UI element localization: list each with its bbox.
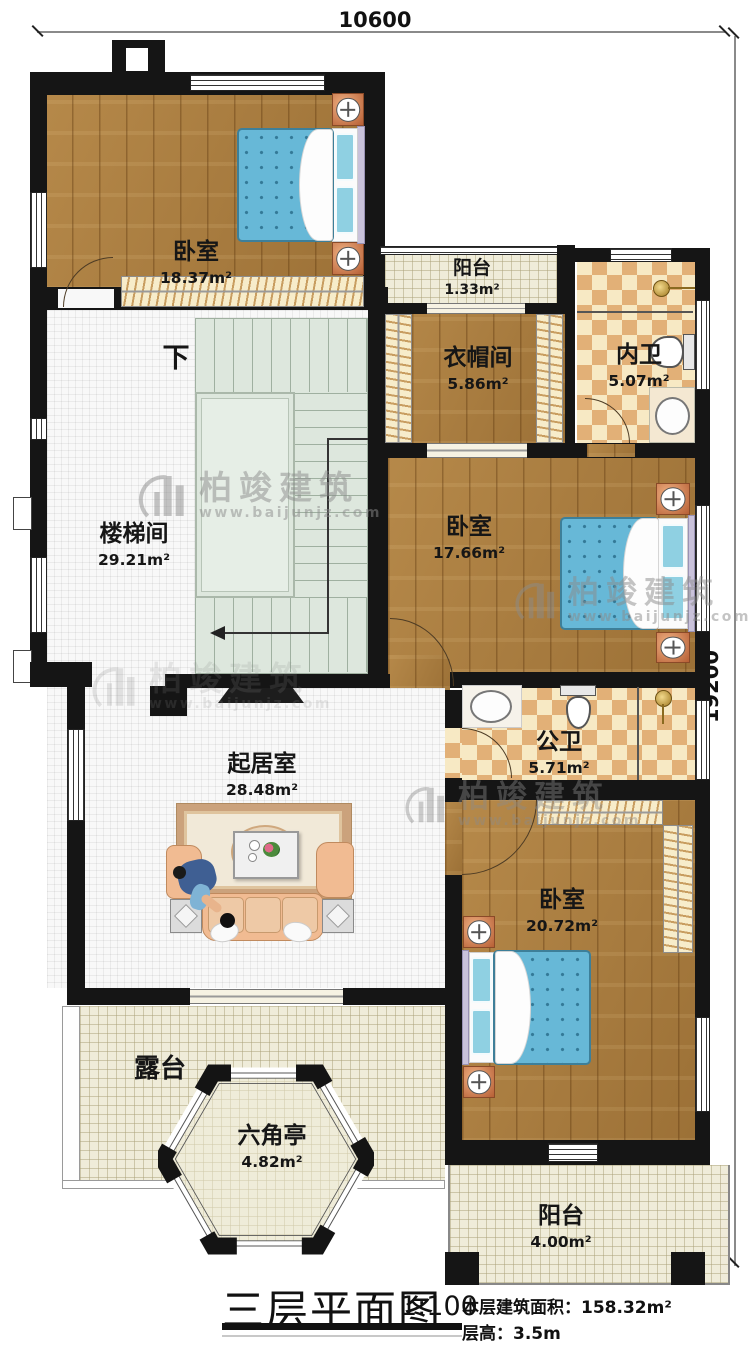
room-label-pavilion: 六角亭4.82m² <box>238 1122 307 1172</box>
sink <box>470 690 512 723</box>
watermark-url: www.baijunjz.com <box>458 813 641 829</box>
room-label-living-room: 起居室28.48m² <box>226 750 298 800</box>
floor-plan: 10600 19200 <box>0 0 750 1351</box>
terrace-parapet <box>62 1006 80 1184</box>
chimney-flue <box>126 48 148 71</box>
room-label-balcony-bottom: 阳台4.00m² <box>530 1202 591 1252</box>
wall <box>30 662 92 687</box>
door-opening <box>587 444 635 457</box>
watermark-brand: 柏竣建筑 <box>149 662 332 697</box>
divider-line <box>577 311 693 313</box>
room-label-cloakroom: 衣帽间5.86m² <box>444 344 513 394</box>
bed-headboard <box>462 950 469 1065</box>
watermark: 柏竣建筑 www.baijunjz.com <box>515 576 750 626</box>
window <box>30 192 47 268</box>
pillow <box>471 957 492 1003</box>
balcony-post <box>445 1252 479 1285</box>
room-label-stair-hall: 楼梯间29.21m² <box>98 520 170 570</box>
title-underline <box>222 1323 462 1330</box>
watermark-logo-icon <box>515 576 561 626</box>
door-opening <box>427 303 525 314</box>
watermark-brand: 柏竣建筑 <box>458 781 641 814</box>
title-underline-thin <box>222 1335 462 1337</box>
plan-area-label: 本层建筑面积： <box>462 1298 581 1318</box>
sink <box>655 397 690 435</box>
toilet-tank <box>560 685 596 696</box>
watermark-logo-icon <box>92 660 142 714</box>
person-head <box>220 913 235 928</box>
nightstand-lamp <box>463 916 495 948</box>
room-label-terrace: 露台 <box>134 1048 186 1085</box>
plate <box>248 853 257 862</box>
nightstand-lamp <box>656 632 690 663</box>
watermark-url: www.baijunjz.com <box>199 505 382 521</box>
sliding-door <box>190 989 343 1004</box>
watermark: 柏竣建筑 www.baijunjz.com <box>138 468 382 524</box>
plan-height-value: 3.5m <box>513 1324 561 1344</box>
plate <box>249 840 260 851</box>
bed-blanket <box>299 129 333 241</box>
watermark: 柏竣建筑 www.baijunjz.com <box>92 660 332 714</box>
room-label-public-bath: 公卫5.71m² <box>528 728 589 778</box>
window <box>695 300 710 390</box>
side-table <box>322 899 354 933</box>
room-label-bedroom3: 卧室20.72m² <box>526 886 598 936</box>
wardrobe <box>121 276 364 307</box>
window <box>695 1017 710 1112</box>
room-label-ensuite: 内卫5.07m² <box>608 341 669 391</box>
nightstand-lamp <box>332 93 364 126</box>
window <box>30 418 47 440</box>
window <box>548 1143 598 1162</box>
wall <box>368 443 710 458</box>
window <box>30 557 47 633</box>
nightstand-lamp <box>656 483 690 515</box>
shower-arm <box>662 704 664 724</box>
plan-height-label: 层高： <box>462 1324 513 1344</box>
wall <box>565 312 575 445</box>
plan-area-value: 158.32m² <box>581 1298 672 1318</box>
wall <box>67 687 85 729</box>
pillow <box>335 133 355 181</box>
pillow <box>661 524 685 569</box>
pillow <box>335 186 355 234</box>
wall <box>67 988 190 1005</box>
door-opening <box>427 443 527 458</box>
stairs-down-label: 下 <box>163 336 190 375</box>
watermark: 柏竣建筑 www.baijunjz.com <box>405 780 641 830</box>
room-label-bedroom1: 卧室18.37m² <box>160 238 232 288</box>
toilet-tank <box>683 334 695 370</box>
watermark-url: www.baijunjz.com <box>568 609 750 625</box>
wall <box>343 988 455 1005</box>
plan-area-note: 本层建筑面积：158.32m² <box>462 1293 672 1318</box>
dimension-top-value: 10600 <box>330 8 420 32</box>
stair-walkline <box>327 438 368 440</box>
nightstand-lamp <box>332 242 364 275</box>
watermark-url: www.baijunjz.com <box>149 696 332 712</box>
watermark-brand: 柏竣建筑 <box>199 471 382 506</box>
flower-vase <box>263 842 280 857</box>
watermark-logo-icon <box>405 780 451 830</box>
stair-walkline <box>224 632 329 634</box>
nightstand-lamp <box>463 1066 495 1098</box>
sofa-cushion <box>245 897 281 933</box>
bed-headboard <box>357 126 365 244</box>
pilaster <box>13 497 32 530</box>
stair-arrow <box>210 626 225 640</box>
window <box>695 700 710 780</box>
pillow <box>471 1009 492 1055</box>
wardrobe <box>663 825 693 953</box>
wall <box>67 821 85 988</box>
window <box>610 248 672 262</box>
window <box>190 74 325 91</box>
watermark-logo-icon <box>138 468 192 524</box>
door-opening <box>445 728 462 778</box>
room-label-bedroom2: 卧室17.66m² <box>433 513 505 563</box>
window <box>380 246 560 255</box>
wardrobe <box>536 314 563 443</box>
wall <box>30 72 47 310</box>
divider-line <box>637 687 639 780</box>
dimension-line-right <box>734 36 736 1266</box>
window <box>67 729 85 821</box>
plan-height-note: 层高：3.5m <box>462 1319 561 1344</box>
shower-arm <box>668 287 695 289</box>
wardrobe <box>385 314 412 443</box>
room-label-balcony-top: 阳台1.33m² <box>444 256 499 299</box>
stair-flight-up <box>195 318 368 392</box>
person-head <box>173 866 186 879</box>
watermark-brand: 柏竣建筑 <box>568 577 750 610</box>
armchair <box>316 842 354 898</box>
wall <box>363 72 385 310</box>
balcony-post <box>671 1252 705 1285</box>
